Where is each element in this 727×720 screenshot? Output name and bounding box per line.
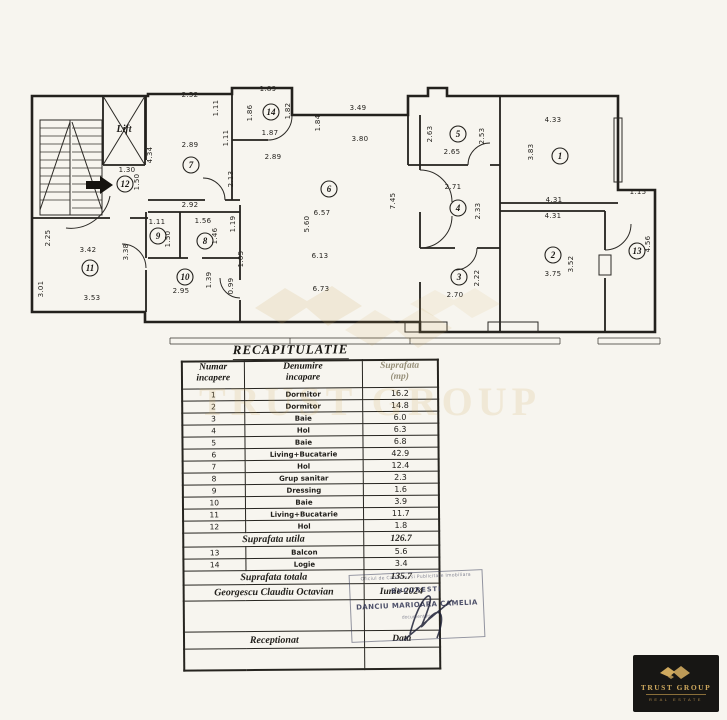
cell-name: Dressing	[245, 484, 363, 497]
dimension-label: 4.34	[146, 146, 154, 163]
dimension-label: 2.70	[447, 291, 464, 299]
cell-num: 6	[183, 449, 245, 461]
dimension-label: 1.30	[119, 166, 136, 174]
dimension-label: 2.13	[227, 171, 235, 188]
dimension-label: 1.15	[630, 188, 647, 196]
dimension-label: 2.33	[474, 203, 482, 220]
trailing-row	[184, 647, 440, 671]
cell-area: 1.6	[363, 483, 439, 496]
cell-num: 13	[183, 547, 245, 559]
signature-name: Georgescu Claudiu Octavian	[184, 584, 364, 601]
dimension-label: 6.73	[313, 285, 330, 293]
dimension-label: 1.87	[262, 129, 279, 137]
dimension-label: 4.33	[545, 116, 562, 124]
room-number: 6	[327, 184, 332, 194]
cell-num: 12	[183, 521, 245, 533]
dimension-label: 3.38	[122, 244, 130, 261]
dimension-label: 6.57	[314, 209, 331, 217]
recap-title: RECAPITULATIE	[233, 341, 349, 360]
cell-name: Dormitor	[244, 400, 362, 413]
cell-num: 4	[182, 425, 244, 437]
cell-name: Logie	[245, 558, 363, 571]
dimension-label: 3.83	[527, 144, 535, 161]
cell-num: 14	[183, 559, 245, 571]
plan-dimensions: 2.522.891.302.921.111.563.423.532.951.89…	[37, 85, 652, 302]
floor-plan-svg: Lift 2.522.891.302.921.111.563.423.532.9…	[0, 0, 727, 352]
logo-subtitle: REAL ESTATE	[649, 697, 703, 702]
cell-name: Hol	[244, 424, 362, 437]
dimension-label: 2.89	[265, 153, 282, 161]
staircase-steps	[40, 128, 102, 208]
dimension-label: 2.22	[473, 270, 481, 287]
dimension-label: 3.80	[352, 135, 369, 143]
dimension-label: 3.01	[37, 281, 45, 298]
cell-name: Dormitor	[244, 388, 362, 401]
dimension-label: 2.89	[182, 141, 199, 149]
subtotal-label: Suprafata utila	[183, 532, 363, 547]
dimension-label: 3.42	[80, 246, 97, 254]
room-number: 2	[550, 250, 556, 260]
room-number: 13	[633, 246, 643, 256]
cell-num: 5	[182, 437, 244, 449]
cell-name: Living+Bucatarie	[245, 508, 363, 521]
lift-label: Lift	[116, 124, 133, 135]
cell-name: Hol	[245, 520, 363, 533]
room-number: 5	[456, 129, 461, 139]
dimension-label: 1.82	[284, 103, 292, 120]
room-number: 10	[181, 272, 191, 282]
dimension-label: 6.13	[312, 252, 329, 260]
cell-area: 42.9	[363, 447, 439, 460]
cell-num: 3	[182, 413, 244, 425]
dimension-label: 1.86	[246, 104, 254, 121]
cell-area: 3.9	[363, 495, 439, 508]
dimension-label: 3.52	[567, 256, 575, 273]
cell-num: 2	[182, 401, 244, 413]
dimension-label: 1.56	[195, 217, 212, 225]
dimension-label: 3.53	[84, 294, 101, 302]
recap-table: Numar incapere Denumire incapare Suprafa…	[181, 359, 441, 672]
dimension-label: 4.31	[546, 196, 563, 204]
cell-area: 2.3	[363, 471, 439, 484]
cell-name: Hol	[245, 460, 363, 473]
dimension-label: 1.50	[133, 174, 141, 191]
room-number: 8	[203, 236, 208, 246]
cell-area: 12.4	[363, 459, 439, 472]
cell-num: 10	[183, 497, 245, 509]
staircase-outline	[40, 120, 102, 215]
dimension-label: 3.49	[350, 104, 367, 112]
reception-row: Receptionat Data	[184, 630, 440, 649]
dimension-label: 2.63	[426, 126, 434, 143]
scanned-page: Lift 2.522.891.302.921.111.563.423.532.9…	[0, 0, 727, 720]
dimension-label: 2.71	[445, 183, 462, 191]
room-number: 1	[558, 151, 563, 161]
logo-divider	[646, 694, 706, 695]
dimension-label: 1.39	[205, 272, 213, 289]
cell-num: 7	[183, 461, 245, 473]
date-label: Data	[364, 630, 440, 648]
room-number: 9	[156, 231, 161, 241]
total-value: 135.7	[363, 569, 439, 584]
main-rows: 1Dormitor16.22Dormitor14.83Baie6.04Hol6.…	[182, 387, 439, 533]
room-number: 4	[455, 203, 461, 213]
dimension-label: 1.11	[212, 100, 220, 117]
dimension-label: 2.65	[444, 148, 461, 156]
dimension-label: 1.89	[260, 85, 277, 93]
header-suprafata: Suprafata (mp)	[362, 360, 438, 388]
dimension-label: 1.05	[237, 251, 245, 268]
dimension-label: 2.95	[173, 287, 190, 295]
cell-area: 6.0	[362, 411, 438, 424]
cell-area: 11.7	[363, 507, 439, 520]
dimension-label: 3.75	[545, 270, 562, 278]
cell-num: 1	[182, 389, 244, 401]
cell-area: 1.8	[363, 519, 439, 532]
subtotal-value: 126.7	[363, 531, 439, 546]
handshake-icon	[659, 665, 693, 681]
reception-label: Receptionat	[184, 631, 364, 649]
cell-num: 8	[183, 473, 245, 485]
cell-num: 9	[183, 485, 245, 497]
dimension-label: 1.11	[222, 130, 230, 147]
cell-name: Living+Bucatarie	[245, 448, 363, 461]
cell-num: 11	[183, 509, 245, 521]
room-number: 11	[86, 263, 95, 273]
header-numar: Numar incapere	[182, 361, 244, 389]
cell-area: 6.3	[362, 423, 438, 436]
dimension-label: 2.25	[44, 230, 52, 247]
dimension-label: 0.99	[227, 278, 235, 295]
dimension-label: 4.31	[545, 212, 562, 220]
trust-group-logo: TRUST GROUP REAL ESTATE	[633, 655, 719, 712]
room-number: 7	[189, 160, 194, 170]
room-number: 3	[456, 272, 462, 282]
entrance-arrow-icon	[86, 176, 113, 194]
cell-area: 16.2	[362, 387, 438, 400]
cell-name: Baie	[244, 436, 362, 449]
dimension-label: 5.60	[303, 216, 311, 233]
dimension-label: 2.52	[182, 91, 199, 99]
total-label: Suprafata totala	[183, 570, 363, 585]
dimension-label: 7.45	[389, 193, 397, 210]
empty-row	[184, 599, 440, 632]
logo-title: TRUST GROUP	[641, 683, 711, 692]
cell-name: Baie	[245, 496, 363, 509]
room-number: 12	[121, 179, 131, 189]
cell-name: Baie	[244, 412, 362, 425]
header-denumire: Denumire incapare	[244, 360, 362, 388]
dimension-label: 2.92	[182, 201, 199, 209]
cell-name: Balcon	[245, 546, 363, 559]
room-number: 14	[267, 107, 277, 117]
cell-area: 14.8	[362, 399, 438, 412]
cell-name: Grup sanitar	[245, 472, 363, 485]
dimension-label: 1.11	[149, 218, 166, 226]
cell-area: 5.6	[363, 545, 439, 558]
dimension-label: 1.19	[229, 216, 237, 233]
header-row: Numar incapere Denumire incapare Suprafa…	[182, 360, 438, 390]
cell-area: 6.8	[362, 435, 438, 448]
staircase-cutlines	[40, 122, 102, 210]
dimension-label: 1.84	[314, 114, 322, 131]
extra-rows: 13Balcon5.614Logie3.4	[183, 545, 439, 571]
dimension-label: 2.53	[478, 128, 486, 145]
signature-date: Iunie-2024	[364, 583, 440, 600]
windows	[405, 118, 622, 332]
cell-area: 3.4	[363, 557, 439, 570]
dimension-label: 1.46	[211, 227, 219, 244]
